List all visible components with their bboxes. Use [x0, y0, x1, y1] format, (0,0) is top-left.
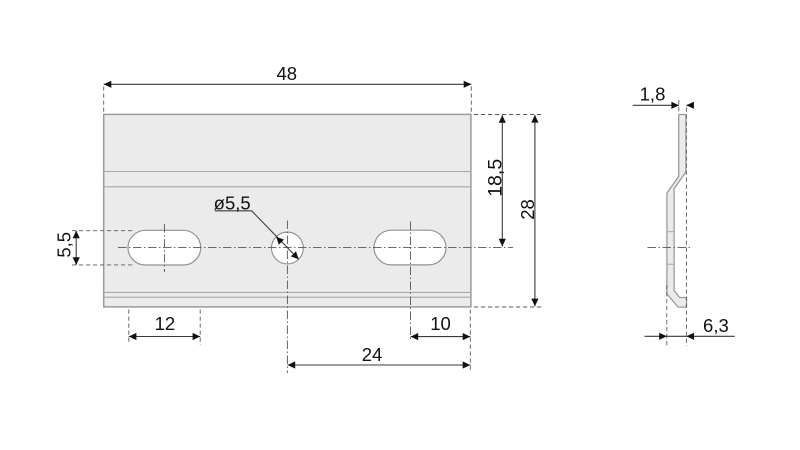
svg-text:12: 12	[155, 313, 176, 334]
svg-text:ø5,5: ø5,5	[214, 192, 251, 213]
svg-text:18,5: 18,5	[485, 159, 507, 197]
svg-text:6,3: 6,3	[703, 315, 729, 336]
svg-text:10: 10	[430, 313, 451, 334]
svg-text:1,8: 1,8	[640, 84, 666, 105]
svg-text:28: 28	[517, 199, 538, 220]
svg-text:48: 48	[277, 63, 298, 84]
svg-text:5,5: 5,5	[54, 232, 75, 258]
svg-text:24: 24	[362, 344, 383, 365]
